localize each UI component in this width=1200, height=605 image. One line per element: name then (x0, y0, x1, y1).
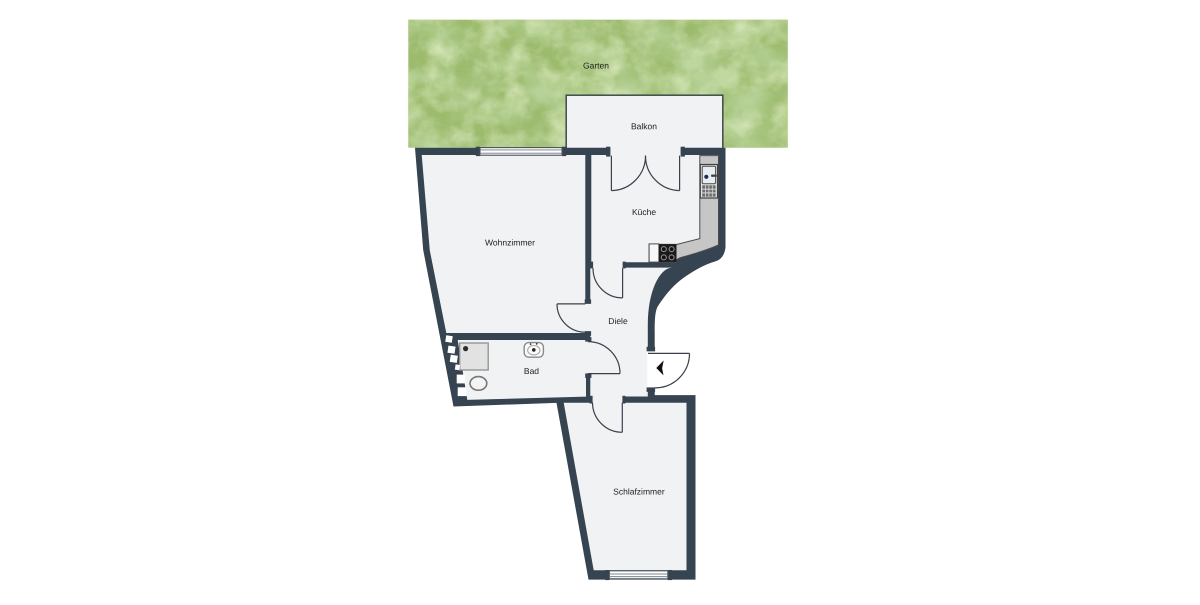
svg-text:Schlafzimmer: Schlafzimmer (613, 487, 665, 497)
svg-text:Wohnzimmer: Wohnzimmer (485, 237, 535, 247)
svg-text:Küche: Küche (632, 207, 656, 217)
svg-text:Garten: Garten (583, 60, 609, 70)
svg-text:Balkon: Balkon (631, 121, 657, 131)
svg-text:Diele: Diele (608, 316, 628, 326)
svg-text:Bad: Bad (524, 366, 539, 376)
